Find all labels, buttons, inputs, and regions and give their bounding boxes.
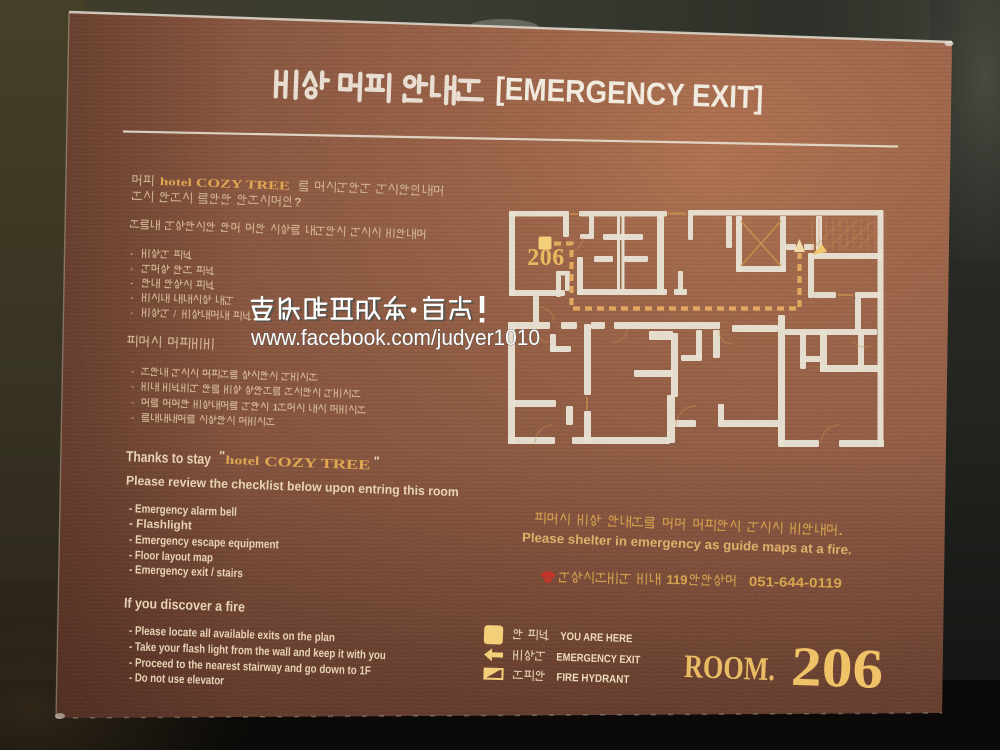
- svg-text:hotel: hotel: [160, 176, 192, 189]
- svg-text:-: -: [131, 381, 135, 392]
- svg-text:www.facebook.com/judyer1010: www.facebook.com/judyer1010: [250, 325, 540, 350]
- svg-text:.: .: [839, 523, 843, 538]
- svg-text:-: -: [130, 293, 134, 304]
- svg-text:-: -: [131, 366, 135, 377]
- svg-text:119: 119: [666, 572, 687, 587]
- svg-text:hotel: hotel: [225, 453, 260, 468]
- svg-text:YOU ARE HERE: YOU ARE HERE: [560, 631, 632, 646]
- svg-text:?: ?: [294, 195, 302, 209]
- svg-text:206: 206: [527, 245, 565, 271]
- svg-text:-: -: [131, 412, 135, 423]
- svg-text:-: -: [130, 264, 134, 275]
- svg-text:-: -: [130, 249, 134, 260]
- svg-text:-: -: [131, 397, 135, 408]
- svg-text:FIRE HYDRANT: FIRE HYDRANT: [556, 672, 630, 687]
- svg-text:051-644-0119: 051-644-0119: [749, 574, 842, 591]
- svg-text:": ": [373, 453, 380, 468]
- svg-text:206: 206: [790, 636, 884, 701]
- svg-text:-: -: [130, 308, 134, 319]
- svg-text:-: -: [130, 278, 134, 289]
- svg-text:Thanks to stay: Thanks to stay: [126, 449, 212, 468]
- svg-text:ROOM.: ROOM.: [683, 649, 775, 688]
- svg-text:- Flashlight: - Flashlight: [129, 516, 192, 532]
